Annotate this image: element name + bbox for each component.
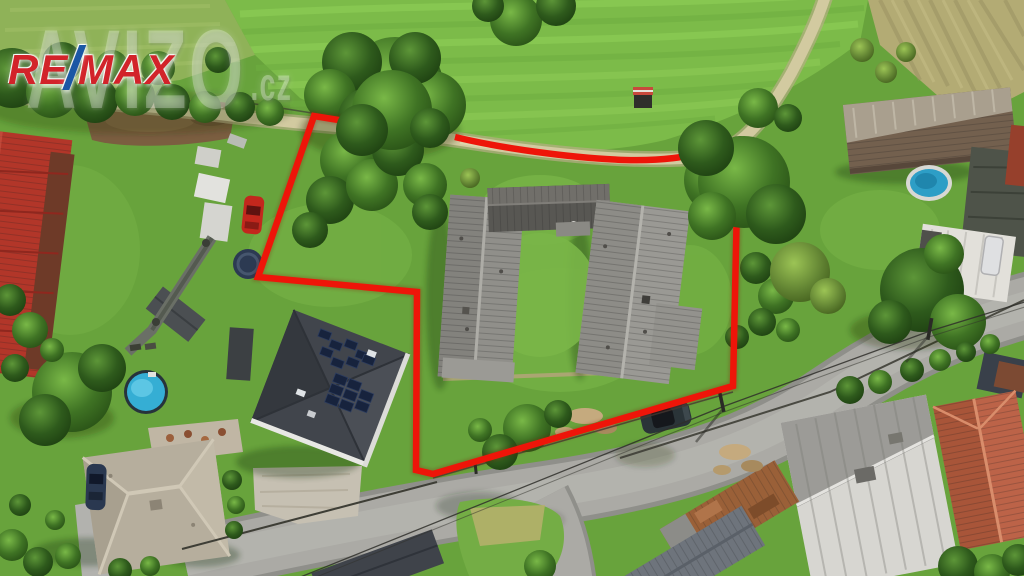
farm-link-wall <box>556 221 590 236</box>
blue-car <box>85 464 107 511</box>
red-car <box>241 195 265 235</box>
aerial-photo: AVIZO.cz RE/MAX <box>0 0 1024 576</box>
photo-scene <box>0 0 1024 576</box>
farm-top-wing <box>487 184 610 232</box>
hip-roof-house <box>83 439 230 574</box>
garage-roof <box>226 327 254 381</box>
left-pool <box>124 370 168 414</box>
field-shed <box>633 87 653 108</box>
right-pool <box>906 165 952 201</box>
